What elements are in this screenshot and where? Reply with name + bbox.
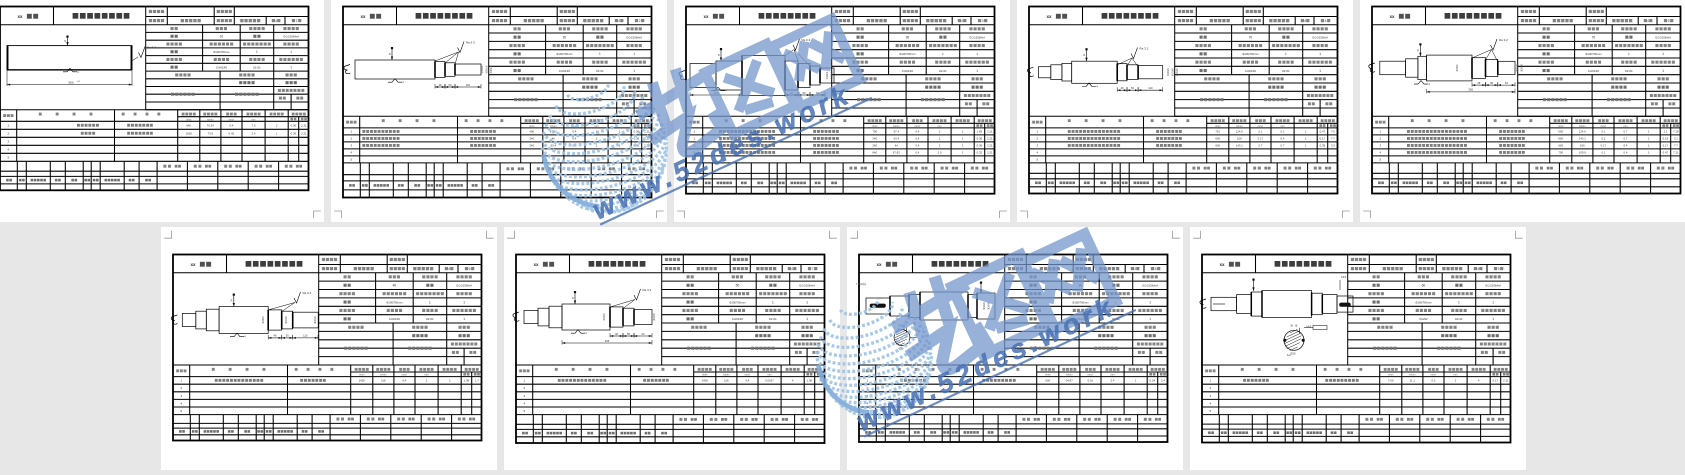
svg-text:R: R	[572, 297, 574, 300]
svg-text:14h9: 14h9	[1341, 277, 1347, 279]
svg-text:r/min: r/min	[529, 124, 535, 127]
svg-text:0.36: 0.36	[977, 143, 983, 147]
svg-text:mm/r: mm/r	[1258, 124, 1264, 127]
svg-text:xx: xx	[703, 13, 709, 18]
svg-text:CA6140: CA6140	[732, 317, 743, 321]
svg-text:124.6: 124.6	[1236, 129, 1243, 133]
svg-text:2.0: 2.0	[938, 150, 942, 154]
svg-text:2: 2	[1379, 136, 1381, 140]
svg-text:4: 4	[402, 80, 404, 84]
svg-text:2: 2	[939, 143, 941, 147]
svg-text:2: 2	[639, 18, 641, 22]
svg-text:mm/r: mm/r	[572, 124, 578, 127]
svg-text:mm: mm	[1624, 124, 1628, 127]
svg-text:1: 1	[1662, 68, 1664, 72]
svg-text:5: 5	[180, 409, 182, 413]
svg-text:0.0167: 0.0167	[765, 379, 774, 383]
svg-text:600: 600	[1558, 143, 1563, 147]
svg-text:Φ106/760mm: Φ106/760mm	[1415, 300, 1432, 304]
svg-text:0.36: 0.36	[634, 136, 640, 140]
svg-text:2.21: 2.21	[987, 150, 993, 154]
svg-text:6x2: 6x2	[1287, 354, 1292, 357]
svg-text:2.21: 2.21	[987, 136, 993, 140]
svg-text:50: 50	[1490, 80, 1493, 84]
svg-text:3.3: 3.3	[1331, 143, 1335, 147]
svg-text:0.47: 0.47	[1663, 150, 1669, 154]
svg-text:1.38: 1.38	[807, 379, 813, 383]
svg-text:xx: xx	[17, 13, 23, 18]
svg-text:0.4: 0.4	[745, 379, 749, 383]
svg-text:mm/r: mm/r	[1088, 374, 1094, 377]
svg-text:1: 1	[429, 300, 431, 304]
svg-text:1: 1	[463, 300, 465, 304]
svg-text:CA6140: CA6140	[1588, 68, 1599, 72]
svg-text:CA6140: CA6140	[216, 65, 227, 69]
svg-text:0.4: 0.4	[915, 136, 919, 140]
svg-text:0.36: 0.36	[634, 129, 640, 133]
svg-text:5: 5	[1379, 157, 1381, 161]
svg-text:mm: mm	[252, 118, 256, 121]
svg-text:1: 1	[1379, 129, 1381, 133]
svg-text:0.17: 0.17	[1493, 379, 1499, 383]
svg-text:m/min: m/min	[380, 374, 387, 377]
svg-text:64: 64	[1505, 80, 1508, 84]
svg-text:50: 50	[736, 284, 740, 288]
svg-text:1: 1	[350, 129, 352, 133]
svg-text:2: 2	[7, 131, 9, 135]
svg-text:600: 600	[1215, 136, 1220, 140]
svg-text:7.18: 7.18	[1673, 129, 1679, 133]
svg-text:1: 1	[1648, 129, 1650, 133]
svg-text:4: 4	[1304, 18, 1306, 22]
svg-text:Φ38r6: Φ38r6	[1455, 63, 1459, 71]
svg-text:4: 4	[618, 18, 620, 22]
svg-text:7.0: 7.0	[1331, 129, 1335, 133]
svg-text:2: 2	[1455, 379, 1457, 383]
svg-text:2: 2	[1209, 386, 1211, 390]
svg-text:xx: xx	[1389, 13, 1395, 18]
svg-text:70.34: 70.34	[207, 123, 214, 127]
svg-text:3: 3	[1209, 394, 1211, 398]
svg-text:mm/r: mm/r	[915, 124, 921, 127]
svg-text:Φ31h6: Φ31h6	[1171, 67, 1175, 75]
svg-text:1: 1	[1648, 143, 1650, 147]
svg-text:67.82: 67.82	[550, 129, 557, 133]
svg-text:2: 2	[1036, 136, 1038, 140]
svg-text:240: 240	[529, 143, 534, 147]
svg-text:mm/r: mm/r	[1431, 374, 1437, 377]
svg-text:02.01: 02.01	[769, 317, 777, 321]
svg-text:60: 60	[1079, 284, 1083, 288]
svg-text:0.4: 0.4	[1281, 136, 1285, 140]
svg-text:mm: mm	[938, 124, 942, 127]
svg-text:Φ20: Φ20	[1291, 352, 1297, 356]
svg-text:1: 1	[1115, 300, 1117, 304]
svg-text:700: 700	[1558, 150, 1563, 154]
svg-text:356: 356	[1469, 87, 1474, 91]
svg-text:CA6140: CA6140	[389, 317, 400, 321]
svg-text:2.21: 2.21	[301, 123, 307, 127]
svg-text:1: 1	[7, 123, 9, 127]
svg-text:3: 3	[982, 18, 984, 22]
svg-text:Φ26h6: Φ26h6	[1520, 63, 1524, 71]
svg-text:Ra 0.4: Ra 0.4	[303, 291, 312, 295]
svg-text:1.69: 1.69	[977, 129, 983, 133]
svg-text:1: 1	[290, 65, 292, 69]
svg-text:30: 30	[906, 35, 910, 39]
svg-text:600: 600	[1215, 143, 1220, 147]
svg-text:0.19: 0.19	[1663, 136, 1669, 140]
svg-text:1: 1	[942, 52, 944, 56]
svg-text:1: 1	[619, 143, 621, 147]
svg-text:xx: xx	[1219, 262, 1225, 267]
svg-text:1: 1	[1662, 52, 1664, 56]
svg-text:109.9: 109.9	[1579, 150, 1586, 154]
svg-text:4: 4	[1036, 150, 1038, 154]
svg-text:4: 4	[1325, 18, 1327, 22]
svg-text:4: 4	[792, 379, 794, 383]
svg-text:4: 4	[1209, 401, 1211, 405]
svg-text:xx: xx	[533, 262, 539, 267]
svg-text:46: 46	[790, 90, 793, 94]
svg-text:46: 46	[1121, 86, 1124, 90]
svg-text:1: 1	[962, 143, 964, 147]
svg-text:1: 1	[1036, 129, 1038, 133]
svg-text:Φ36k6: Φ36k6	[480, 65, 484, 73]
svg-text:r/min: r/min	[702, 374, 708, 377]
svg-text:CA6140: CA6140	[1245, 68, 1256, 72]
svg-text:m/min: m/min	[1409, 374, 1416, 377]
svg-text:Φ30k6: Φ30k6	[982, 302, 986, 310]
svg-text:110: 110	[466, 82, 471, 86]
svg-text:Φ106/760mm: Φ106/760mm	[899, 52, 916, 56]
svg-text:1: 1	[1305, 129, 1307, 133]
svg-text:1: 1	[523, 379, 525, 383]
svg-text:mm: mm	[768, 374, 772, 377]
svg-text:46: 46	[1477, 80, 1480, 84]
svg-text:1: 1	[619, 129, 621, 133]
svg-text:Φ20: Φ20	[899, 347, 905, 351]
svg-text:Φ30k6: Φ30k6	[830, 71, 834, 79]
svg-text:2: 2	[180, 386, 182, 390]
svg-text:0.4: 0.4	[915, 150, 919, 154]
svg-text:Ra 3.2: Ra 3.2	[1140, 46, 1149, 50]
svg-text:11.1: 11.1	[1410, 379, 1416, 383]
svg-text:Ra 6.3: Ra 6.3	[466, 40, 475, 44]
svg-text:X62W: X62W	[1419, 317, 1428, 321]
svg-text:2: 2	[939, 129, 941, 133]
svg-text:0.1: 0.1	[1601, 150, 1605, 154]
svg-text:m/min: m/min	[1066, 374, 1073, 377]
svg-text:710: 710	[1215, 129, 1220, 133]
svg-text:5: 5	[1668, 18, 1670, 22]
svg-text:0.39: 0.39	[1320, 143, 1326, 147]
svg-text:02.01: 02.01	[596, 68, 604, 72]
svg-text:0.7: 0.7	[1258, 143, 1262, 147]
svg-text:1: 1	[599, 52, 601, 56]
svg-text:Φ106/760mm: Φ106/760mm	[1585, 52, 1602, 56]
svg-text:3: 3	[693, 143, 695, 147]
svg-text:4: 4	[693, 150, 695, 154]
svg-text:Ra 3.2: Ra 3.2	[1499, 37, 1508, 41]
svg-text:0.1: 0.1	[1258, 129, 1262, 133]
svg-text:356: 356	[605, 339, 610, 343]
svg-text:400: 400	[529, 129, 534, 133]
svg-text:1: 1	[1209, 379, 1211, 383]
svg-text:Φ106/760mm: Φ106/760mm	[213, 50, 230, 54]
svg-text:700: 700	[872, 129, 877, 133]
svg-text:Φ36k6: Φ36k6	[825, 71, 829, 79]
svg-text:Ra 3.2: Ra 3.2	[643, 288, 652, 292]
svg-text:70: 70	[1592, 35, 1596, 39]
svg-text:3: 3	[350, 143, 352, 147]
svg-text:1: 1	[633, 68, 635, 72]
svg-text:0.17: 0.17	[1320, 136, 1326, 140]
svg-text:0.32: 0.32	[977, 150, 983, 154]
svg-text:GCr15SiMnA: GCr15SiMnA	[626, 35, 642, 39]
svg-text:1: 1	[806, 317, 808, 321]
svg-text:40: 40	[393, 284, 397, 288]
svg-text:02.01: 02.01	[1282, 68, 1290, 72]
svg-text:50: 50	[803, 90, 806, 94]
svg-text:1: 1	[1492, 317, 1494, 321]
svg-text:63.4: 63.4	[894, 136, 900, 140]
svg-text:1: 1	[1149, 317, 1151, 321]
svg-text:2.21: 2.21	[987, 143, 993, 147]
svg-text:Φ36k6: Φ36k6	[1166, 67, 1170, 75]
svg-text:X52K: X52K	[1077, 317, 1086, 321]
svg-text:63.4: 63.4	[551, 143, 557, 147]
svg-text:5: 5	[693, 157, 695, 161]
svg-text:240: 240	[529, 136, 534, 140]
svg-text:0.16: 0.16	[1088, 379, 1094, 383]
svg-text:1: 1	[1319, 52, 1321, 56]
svg-text:64: 64	[816, 90, 819, 94]
svg-text:8: 8	[1155, 267, 1157, 271]
svg-text:mm: mm	[425, 374, 429, 377]
svg-text:2: 2	[350, 136, 352, 140]
svg-text:1: 1	[180, 379, 182, 383]
svg-text:3: 3	[523, 394, 525, 398]
svg-text:600: 600	[1045, 379, 1050, 383]
svg-text:1: 1	[693, 129, 695, 133]
svg-text:1: 1	[1648, 150, 1650, 154]
svg-text:mm: mm	[1454, 374, 1458, 377]
svg-text:xx: xx	[1046, 13, 1052, 18]
svg-text:3: 3	[180, 394, 182, 398]
svg-text:+0.1: +0.1	[77, 80, 81, 82]
svg-text:mm: mm	[595, 124, 599, 127]
svg-text:46: 46	[615, 332, 618, 336]
svg-text:m/min: m/min	[723, 374, 730, 377]
svg-text:mm/r: mm/r	[229, 118, 235, 121]
svg-text:xx: xx	[190, 262, 196, 267]
svg-text:4: 4	[1379, 150, 1381, 154]
svg-text:9: 9	[1498, 267, 1500, 271]
svg-text:0.7: 0.7	[1624, 136, 1628, 140]
svg-text:Φ30k6: Φ30k6	[313, 316, 317, 324]
svg-text:1.7: 1.7	[475, 379, 479, 383]
svg-text:0.4: 0.4	[402, 379, 406, 383]
svg-text:2: 2	[596, 136, 598, 140]
svg-text:106: 106	[1580, 143, 1585, 147]
svg-text:02.01: 02.01	[253, 65, 261, 69]
svg-text:5: 5	[350, 157, 352, 161]
svg-text:4: 4	[725, 88, 727, 92]
svg-text:0.2: 0.2	[1431, 379, 1435, 383]
svg-text:600: 600	[1558, 136, 1563, 140]
svg-text:600: 600	[1558, 129, 1563, 133]
svg-text:70: 70	[1249, 35, 1253, 39]
svg-text:R: R	[64, 40, 66, 43]
svg-text:7.21: 7.21	[1673, 150, 1679, 154]
svg-text:4: 4	[1096, 84, 1098, 88]
svg-text:GCr15SiMnA: GCr15SiMnA	[283, 34, 299, 38]
svg-text:1000: 1000	[186, 131, 193, 135]
svg-text:5: 5	[866, 409, 868, 413]
svg-text:60: 60	[1422, 284, 1426, 288]
svg-text:Φ30k6: Φ30k6	[1515, 63, 1519, 71]
svg-text:0.36: 0.36	[291, 123, 297, 127]
svg-text:GCr15SiMnA: GCr15SiMnA	[1485, 284, 1501, 288]
svg-text:4: 4	[866, 401, 868, 405]
svg-text:0.36: 0.36	[291, 131, 297, 135]
svg-text:2: 2	[693, 136, 695, 140]
svg-text:143.1: 143.1	[1236, 143, 1243, 147]
svg-text:m/min: m/min	[1579, 124, 1586, 127]
svg-text:2.4: 2.4	[252, 131, 256, 135]
svg-text:4: 4	[350, 150, 352, 154]
svg-text:240: 240	[872, 143, 877, 147]
svg-text:7.0: 7.0	[252, 123, 256, 127]
svg-text:3: 3	[7, 139, 9, 143]
svg-text:GCr15SiMnA: GCr15SiMnA	[1142, 284, 1158, 288]
svg-text:2: 2	[939, 136, 941, 140]
svg-text:Φ26h6: Φ26h6	[987, 302, 991, 310]
svg-text:mm: mm	[1281, 124, 1285, 127]
svg-text:1: 1	[1305, 136, 1307, 140]
svg-text:0.4: 0.4	[572, 129, 576, 133]
svg-text:4: 4	[961, 18, 963, 22]
svg-text:1: 1	[1319, 68, 1321, 72]
svg-text:02.01: 02.01	[939, 68, 947, 72]
svg-text:1: 1	[276, 131, 278, 135]
svg-text:3.1: 3.1	[1674, 136, 1678, 140]
svg-text:2.21: 2.21	[644, 136, 650, 140]
svg-text:116: 116	[724, 379, 729, 383]
svg-text:xx: xx	[876, 262, 882, 267]
svg-text:2.21: 2.21	[644, 129, 650, 133]
svg-text:2: 2	[449, 379, 451, 383]
svg-text:r/min: r/min	[359, 374, 365, 377]
svg-text:44: 44	[895, 143, 899, 147]
svg-text:1400: 1400	[359, 379, 366, 383]
svg-text:Φ30k6: Φ30k6	[1175, 67, 1179, 75]
svg-text:1: 1	[962, 136, 964, 140]
svg-text:Φ30k6: Φ30k6	[489, 65, 493, 73]
svg-text:r/min: r/min	[1388, 374, 1394, 377]
svg-text:640: 640	[186, 123, 191, 127]
svg-text:4: 4	[1134, 267, 1136, 271]
svg-text:GCr15SiMnA: GCr15SiMnA	[799, 284, 815, 288]
svg-text:0.7: 0.7	[1281, 143, 1285, 147]
svg-text:Φ31h6: Φ31h6	[485, 65, 489, 73]
svg-text:Φ46r6: Φ46r6	[261, 316, 265, 324]
svg-text:3: 3	[819, 379, 821, 383]
svg-text:0.1: 0.1	[1281, 129, 1285, 133]
svg-text:R: R	[1083, 54, 1085, 57]
svg-text:0.7: 0.7	[1624, 129, 1628, 133]
svg-text:1.1: 1.1	[1663, 129, 1667, 133]
svg-text:Φ106/760mm: Φ106/760mm	[386, 300, 403, 304]
svg-text:r/min: r/min	[186, 118, 192, 121]
svg-text:4: 4	[1647, 18, 1649, 22]
svg-text:02.01: 02.01	[426, 317, 434, 321]
svg-text:T 8,p6(G): T 8,p6(G)	[856, 283, 866, 286]
svg-text:Ra 6.3: Ra 6.3	[147, 45, 156, 49]
svg-text:6: 6	[469, 267, 471, 271]
svg-text:124.6: 124.6	[1579, 129, 1586, 133]
svg-text:1: 1	[866, 379, 868, 383]
svg-text:1: 1	[806, 300, 808, 304]
svg-text:Φ106/760mm: Φ106/760mm	[1072, 300, 1089, 304]
svg-text:Φ46r6: Φ46r6	[602, 313, 606, 321]
svg-text:4: 4	[1478, 379, 1480, 383]
svg-text:1: 1	[619, 136, 621, 140]
svg-text:114: 114	[714, 90, 719, 94]
svg-text:0.17: 0.17	[1601, 143, 1607, 147]
svg-text:73.6: 73.6	[208, 131, 214, 135]
svg-text:2.21: 2.21	[301, 131, 307, 135]
svg-text:4: 4	[275, 18, 277, 22]
svg-text:CA6140: CA6140	[902, 68, 913, 72]
svg-text:4: 4	[1428, 82, 1430, 86]
svg-text:GCr15SiMnA: GCr15SiMnA	[456, 284, 472, 288]
svg-text:1: 1	[290, 50, 292, 54]
svg-text:mm/r: mm/r	[1601, 124, 1607, 127]
svg-text:4: 4	[1477, 267, 1479, 271]
svg-text:5: 5	[1036, 157, 1038, 161]
svg-text:2.21: 2.21	[644, 143, 650, 147]
svg-text:1: 1	[1648, 136, 1650, 140]
svg-text:1: 1	[1628, 52, 1630, 56]
svg-text:50: 50	[1131, 86, 1134, 90]
svg-text:m/min: m/min	[1236, 124, 1243, 127]
svg-text:2: 2	[276, 123, 278, 127]
svg-text:4: 4	[585, 331, 587, 335]
svg-text:50: 50	[627, 332, 630, 336]
svg-text:3: 3	[1036, 143, 1038, 147]
svg-text:R: R	[231, 300, 233, 303]
svg-text:mm/r: mm/r	[745, 374, 751, 377]
svg-text:1: 1	[256, 50, 258, 54]
svg-text:2.4: 2.4	[1111, 379, 1115, 383]
svg-text:7.00: 7.00	[1388, 379, 1394, 383]
svg-text:4: 4	[523, 401, 525, 405]
svg-text:46: 46	[439, 82, 442, 86]
svg-text:1: 1	[976, 68, 978, 72]
svg-text:Φ106/760mm: Φ106/760mm	[729, 300, 746, 304]
svg-text:0.2: 0.2	[1601, 136, 1605, 140]
svg-text:mm: mm	[1111, 374, 1115, 377]
svg-text:20: 20	[563, 35, 567, 39]
svg-text:7: 7	[812, 267, 814, 271]
svg-text:GCr15SiMnA: GCr15SiMnA	[1655, 35, 1671, 39]
svg-text:r/min: r/min	[1558, 124, 1564, 127]
svg-text:0.1: 0.1	[1601, 129, 1605, 133]
svg-text:02.01: 02.01	[1112, 317, 1120, 321]
svg-text:1: 1	[772, 300, 774, 304]
